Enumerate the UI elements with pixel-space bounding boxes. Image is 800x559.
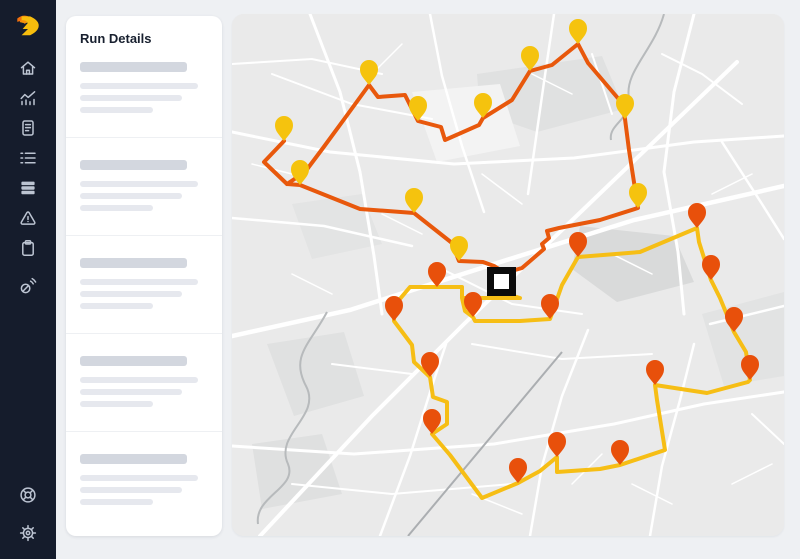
skeleton-header-bar — [80, 160, 187, 170]
skeleton-line — [80, 205, 153, 211]
help-icon — [18, 485, 38, 505]
sidebar-nav — [18, 58, 38, 296]
sidebar-footer — [18, 485, 38, 559]
brand-logo — [13, 11, 43, 41]
clipboard-icon — [18, 238, 38, 258]
app-window: Run Details — [0, 0, 800, 559]
analytics-icon — [18, 88, 38, 108]
layers-icon — [18, 178, 38, 198]
skeleton-line — [80, 181, 198, 187]
skeleton-header-bar — [80, 356, 187, 366]
skeleton-line — [80, 389, 182, 395]
skeleton-line — [80, 377, 198, 383]
depot-marker[interactable] — [491, 271, 513, 293]
checklist-icon — [18, 148, 38, 168]
gear-icon — [18, 523, 38, 543]
sidebar-item-stack[interactable] — [18, 178, 38, 198]
skeleton-line — [80, 279, 198, 285]
skeleton-header-bar — [80, 454, 187, 464]
skeleton-header-bar — [80, 62, 187, 72]
skeleton-section — [66, 235, 222, 333]
skeleton-line — [80, 107, 153, 113]
map-canvas[interactable] — [232, 14, 784, 536]
sidebar-item-connections[interactable] — [18, 276, 38, 296]
skeleton-line — [80, 401, 153, 407]
home-icon — [18, 58, 38, 78]
sidebar-item-home[interactable] — [18, 58, 38, 78]
skeleton-header-bar — [80, 258, 187, 268]
run-details-panel: Run Details — [66, 16, 222, 536]
skeleton-section — [66, 333, 222, 431]
map-panel[interactable] — [232, 14, 784, 536]
run-details-sections — [66, 47, 222, 529]
sidebar-item-help[interactable] — [18, 485, 38, 505]
sidebar-item-documents[interactable] — [18, 118, 38, 138]
skeleton-section — [66, 431, 222, 529]
sidebar-item-clipboard[interactable] — [18, 238, 38, 258]
document-icon — [18, 118, 38, 138]
skeleton-line — [80, 487, 182, 493]
skeleton-line — [80, 193, 182, 199]
skeleton-line — [80, 95, 182, 101]
skeleton-section — [66, 47, 222, 137]
sidebar-item-tasks[interactable] — [18, 148, 38, 168]
skeleton-line — [80, 303, 153, 309]
skeleton-line — [80, 499, 153, 505]
signal-icon — [18, 276, 38, 296]
sidebar-item-analytics[interactable] — [18, 88, 38, 108]
skeleton-line — [80, 475, 198, 481]
skeleton-line — [80, 291, 182, 297]
skeleton-line — [80, 83, 198, 89]
panel-title: Run Details — [66, 16, 222, 47]
alert-icon — [18, 208, 38, 228]
sidebar-item-settings[interactable] — [18, 523, 38, 543]
sidebar-item-alerts[interactable] — [18, 208, 38, 228]
skeleton-section — [66, 137, 222, 235]
sidebar — [0, 0, 56, 559]
